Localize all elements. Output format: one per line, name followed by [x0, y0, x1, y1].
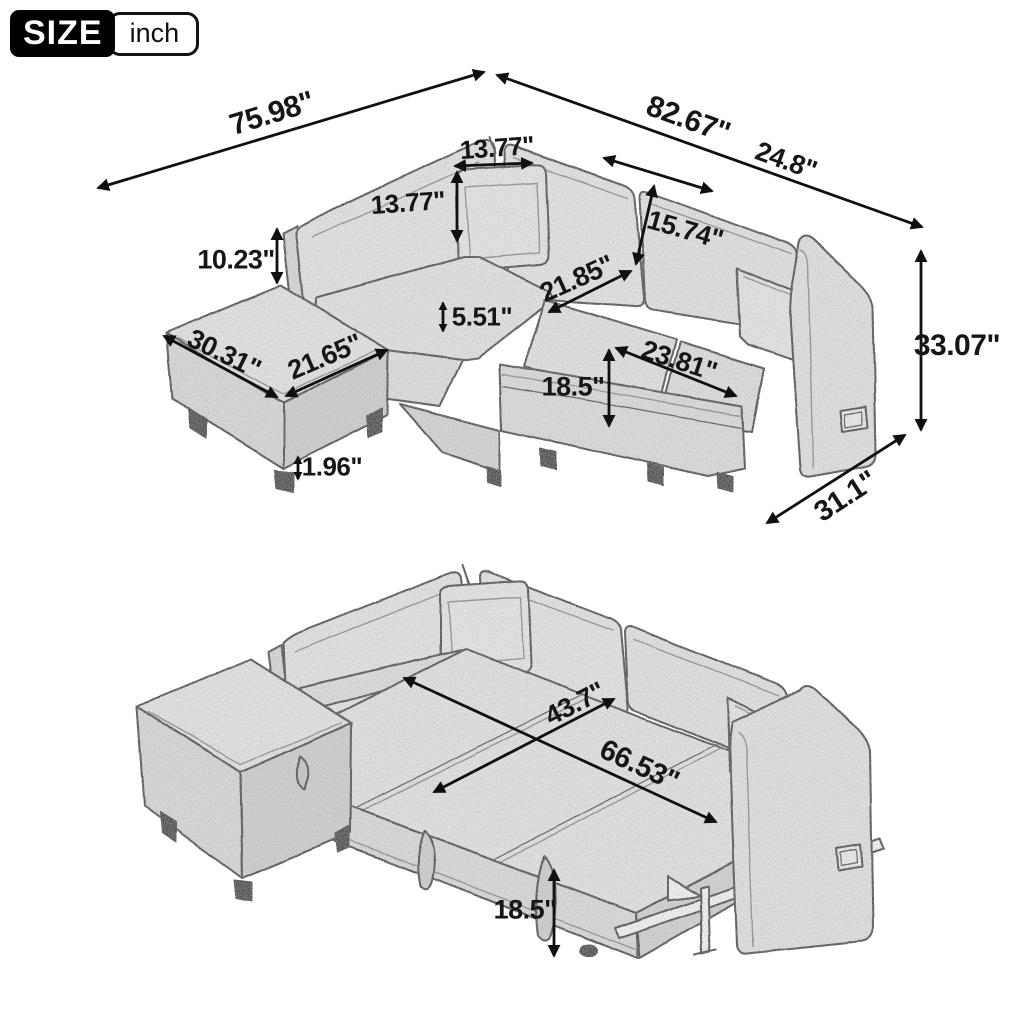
- dim-leg-height: 1.96": [302, 452, 362, 483]
- size-badge: SIZE inch: [10, 10, 199, 57]
- dim-pillow-height: 13.77": [370, 185, 446, 221]
- size-badge-label: SIZE: [10, 10, 115, 57]
- corner-gap-bed: [463, 565, 470, 585]
- dim-pillow-width: 13.77": [459, 130, 535, 166]
- unit-chip: inch: [108, 12, 200, 56]
- left-base: [400, 404, 500, 472]
- bed-frame-leg: [700, 886, 710, 954]
- dim-overall-height: 33.07": [914, 329, 1000, 363]
- right-arm: [790, 236, 876, 477]
- sofa-illustration-top: [166, 138, 876, 492]
- dim-backrest-above-seat: 10.23": [197, 245, 274, 276]
- dim-bed-height: 18.5": [494, 895, 557, 926]
- corner-throw-pillow: [457, 165, 549, 271]
- dim-seat-height: 18.5": [542, 372, 605, 403]
- bed-foot: [579, 944, 597, 956]
- dim-cushion-thickness: 5.51": [452, 302, 512, 333]
- right-arm-bed: [729, 686, 873, 953]
- size-diagram-page: SIZE inch: [0, 0, 1024, 1024]
